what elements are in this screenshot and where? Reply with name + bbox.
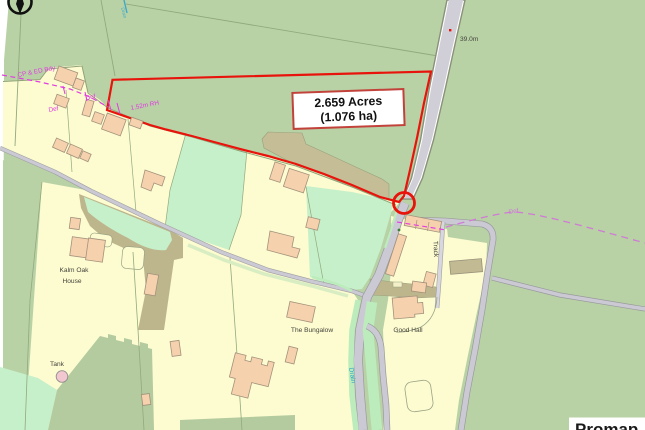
svg-text:Track: Track [432,241,440,258]
svg-text:The Bungalow: The Bungalow [291,327,333,334]
svg-text:(1.076 ha): (1.076 ha) [320,108,377,124]
svg-text:Tank: Tank [50,361,65,368]
svg-text:Kalm Oak: Kalm Oak [60,267,90,274]
svg-text:House: House [62,278,81,285]
svg-text:39.0m: 39.0m [460,36,479,43]
svg-text:Good Hall: Good Hall [393,327,423,334]
svg-text:Promap: Promap [575,420,638,430]
